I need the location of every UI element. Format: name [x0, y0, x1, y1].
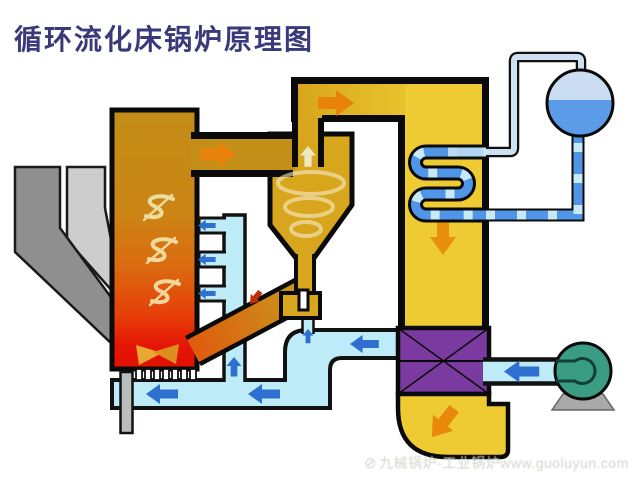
air-nozzles [136, 369, 196, 380]
vortex-finder [292, 118, 324, 167]
loopseal-slot [299, 290, 308, 310]
watermark-text: 九械锅炉-工业锅炉www.guoluyun.com [379, 455, 629, 471]
air-preheater [398, 328, 489, 394]
flue-gas-elbow [398, 394, 508, 457]
watermark: ⊘九械锅炉-工业锅炉www.guoluyun.com [364, 453, 629, 473]
fan [552, 343, 614, 410]
page-title: 循环流化床锅炉原理图 [14, 18, 314, 58]
boiler-diagram: 循环流化床锅炉原理图 ⊘九械锅炉-工业锅炉www.guoluyun.com [0, 0, 640, 480]
steam-drum [547, 70, 613, 136]
ash-drain-pipe [121, 372, 133, 433]
watermark-logo-icon: ⊘ [364, 455, 377, 472]
secondary-air-pipe [224, 215, 245, 382]
furnace-outlet-duct [191, 132, 295, 177]
fan-duct [483, 358, 560, 384]
diagram-canvas [0, 0, 640, 480]
